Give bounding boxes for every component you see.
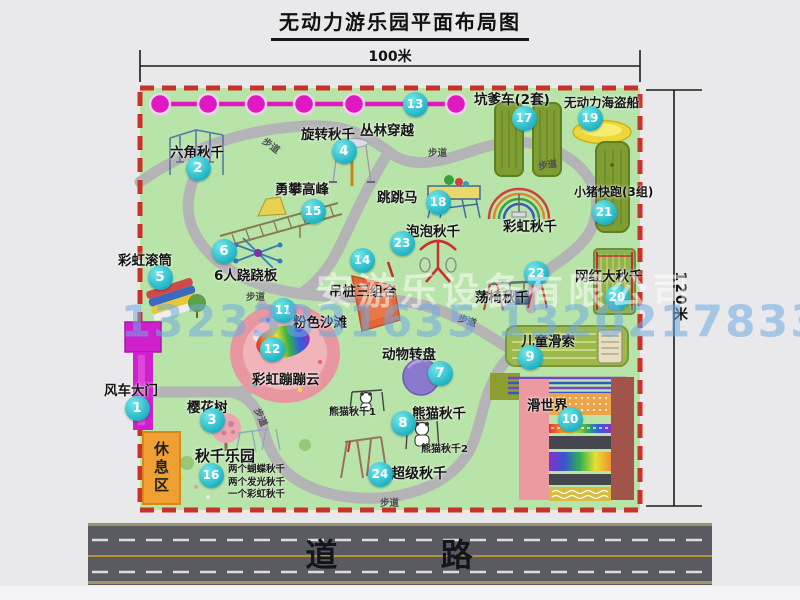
pig-run (596, 142, 629, 232)
road-label: 道 路 (305, 530, 518, 576)
rest-area-label: 休息区 (143, 432, 180, 504)
animal-turntable (403, 359, 439, 395)
bottom-strip (0, 586, 800, 600)
park-layout-map: 无动力游乐园平面布局图 100米 120米 道 路 休息区 安游乐设备有限公司 … (0, 0, 800, 600)
pirate-ship (573, 121, 631, 144)
watermark-phone: 13233831635 13202178333 (121, 297, 800, 348)
dim-width-label: 100米 (368, 46, 411, 66)
page-title: 无动力游乐园平面布局图 (271, 6, 529, 41)
